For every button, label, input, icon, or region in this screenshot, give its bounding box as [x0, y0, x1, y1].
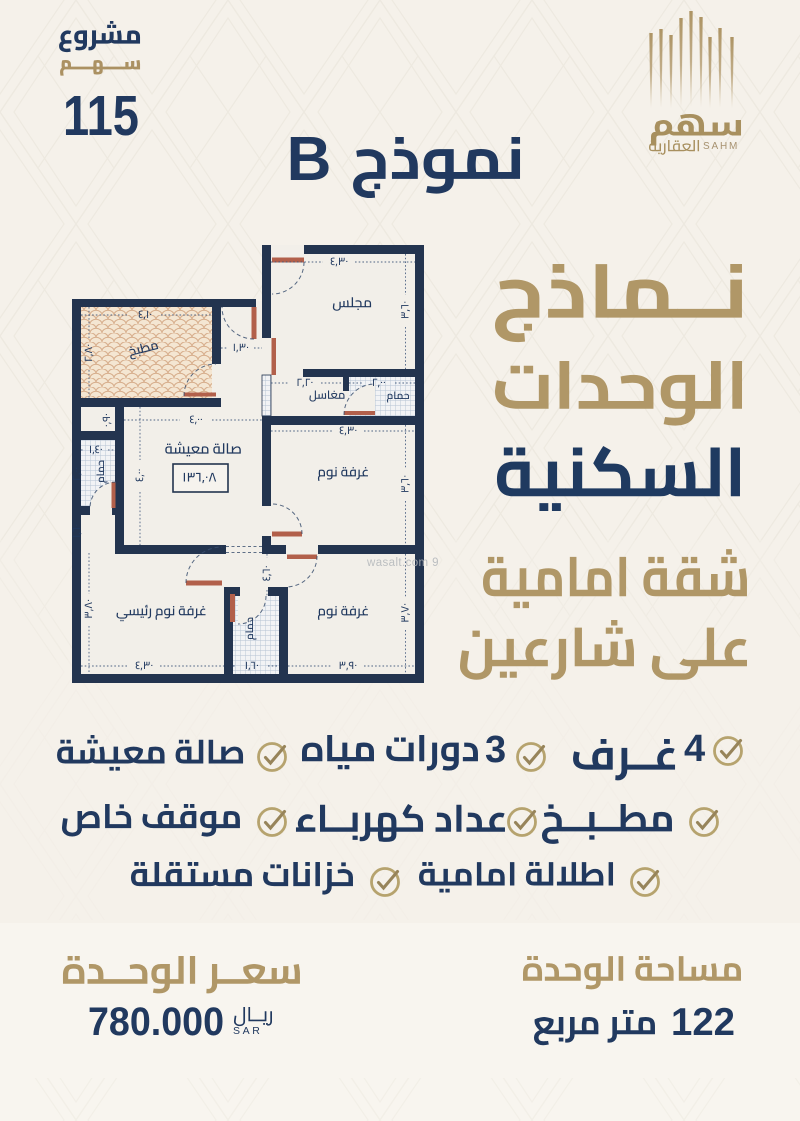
svg-text:B: B [287, 125, 332, 194]
svg-text:3: 3 [485, 729, 506, 771]
svg-text:4: 4 [684, 728, 705, 770]
svg-text:SAHM: SAHM [703, 141, 739, 152]
svg-text:780.000: 780.000 [88, 1000, 224, 1044]
svg-text:122: 122 [671, 1001, 735, 1044]
svg-text:SAR: SAR [233, 1025, 262, 1037]
svg-text:115: 115 [63, 84, 139, 148]
svg-text:wasalt.com 9: wasalt.com 9 [366, 557, 439, 569]
